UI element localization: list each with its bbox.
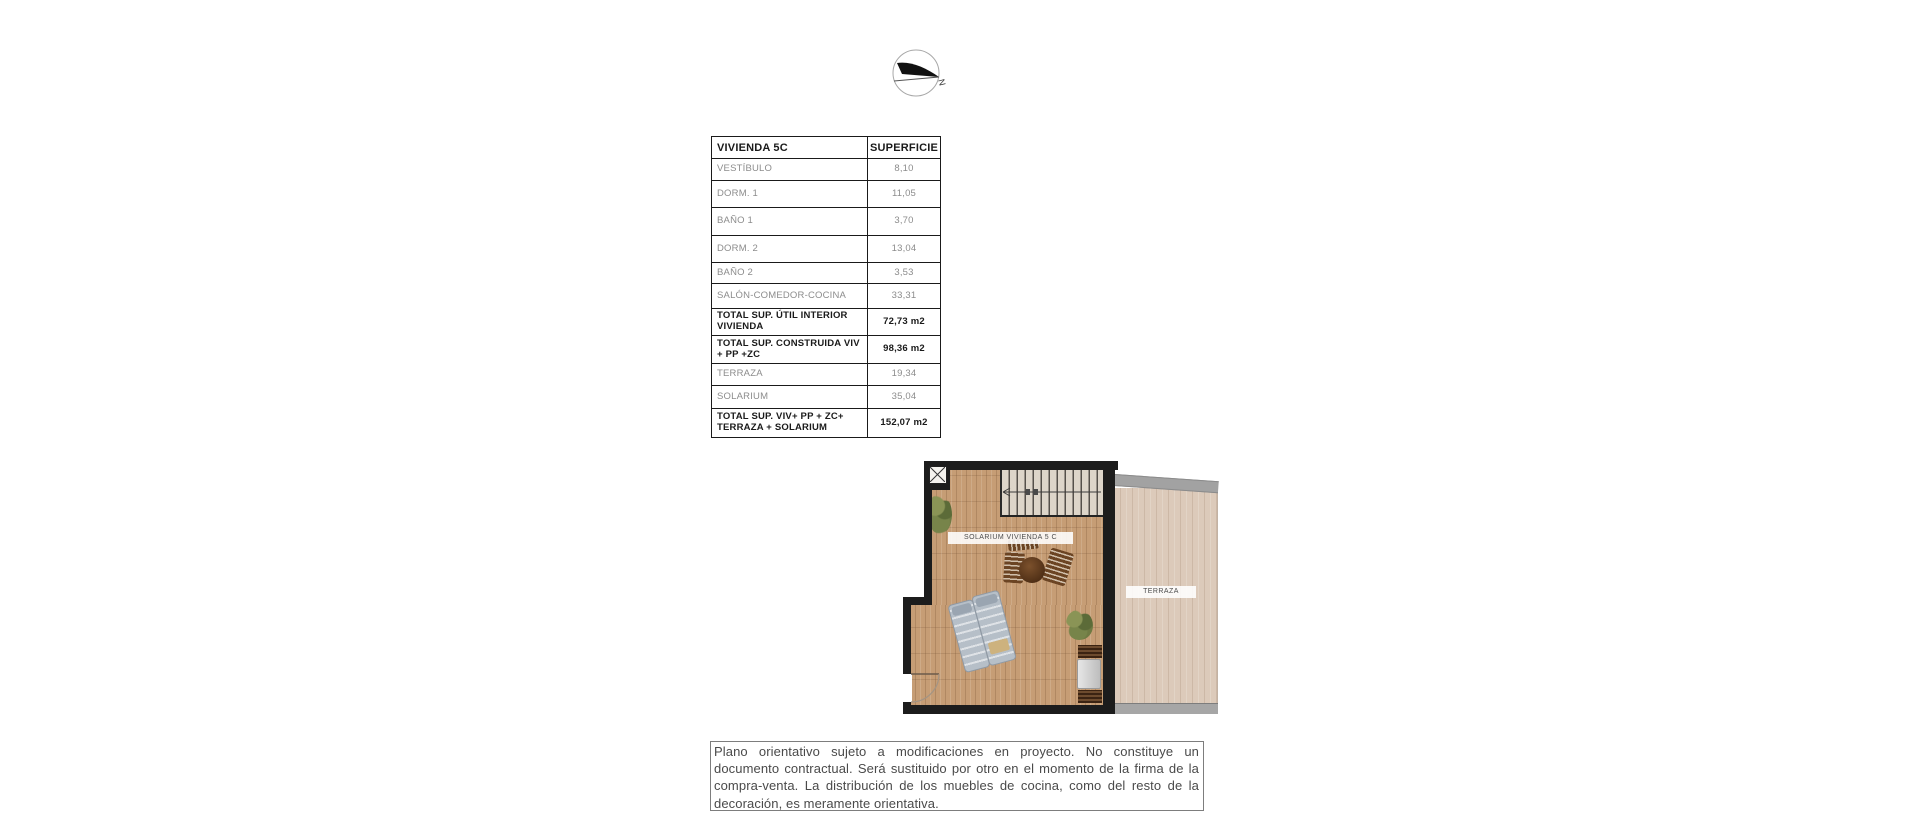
table-row: VESTÍBULO8,10: [712, 159, 941, 181]
solarium-label: SOLARIUM VIVIENDA 5 C: [948, 532, 1073, 544]
table-row: DORM. 213,04: [712, 236, 941, 263]
floor-plan: SOLARIUM VIVIENDA 5 C TERRAZA: [900, 461, 1218, 717]
terrace-label: TERRAZA: [1126, 586, 1196, 598]
counter-slats: [1078, 690, 1102, 703]
wall: [1103, 470, 1115, 714]
table-row: SALÓN-COMEDOR-COCINA33,31: [712, 284, 941, 309]
table-row: TERRAZA19,34: [712, 364, 941, 386]
table-title: VIVIENDA 5C: [712, 137, 868, 159]
table-row: BAÑO 23,53: [712, 263, 941, 284]
staircase: [1000, 470, 1103, 517]
plant: [1066, 610, 1093, 640]
wall: [924, 461, 1118, 470]
lounger-pillow: [975, 593, 999, 607]
table-row-total: TOTAL SUP. ÚTIL INTERIOR VIVIENDA72,73 m…: [712, 309, 941, 336]
table-row-total: TOTAL SUP. CONSTRUIDA VIV + PP +ZC98,36 …: [712, 336, 941, 364]
plan-sheet: N VIVIENDA 5C SUPERFICIE VESTÍBULO8,10 D…: [0, 0, 1920, 820]
lounger-pillow: [951, 603, 973, 617]
shaft-icon: [929, 466, 947, 484]
table-row-total: TOTAL SUP. VIV+ PP + ZC+ TERRAZA + SOLAR…: [712, 409, 941, 438]
barbecue-counter: [1078, 645, 1102, 703]
disclaimer-box: Plano orientativo sujeto a modificacione…: [710, 741, 1204, 811]
door-opening: [902, 674, 912, 702]
towel: [988, 638, 1010, 655]
grill: [1077, 659, 1101, 689]
wall: [903, 705, 1115, 714]
table-row: SOLARIUM35,04: [712, 386, 941, 409]
terrace-edge-strip: [1115, 703, 1218, 714]
surface-table: VIVIENDA 5C SUPERFICIE VESTÍBULO8,10 DOR…: [711, 136, 941, 438]
table-row: BAÑO 13,70: [712, 208, 941, 236]
north-letter: N: [936, 78, 947, 87]
counter-slats: [1078, 645, 1102, 658]
table-header-row: VIVIENDA 5C SUPERFICIE: [712, 137, 941, 159]
surface-header: SUPERFICIE: [868, 137, 941, 159]
disclaimer-text: Plano orientativo sujeto a modificacione…: [714, 744, 1199, 811]
compass-north-icon: N: [885, 45, 960, 103]
round-table: [1019, 557, 1045, 583]
table-row: DORM. 111,05: [712, 181, 941, 208]
